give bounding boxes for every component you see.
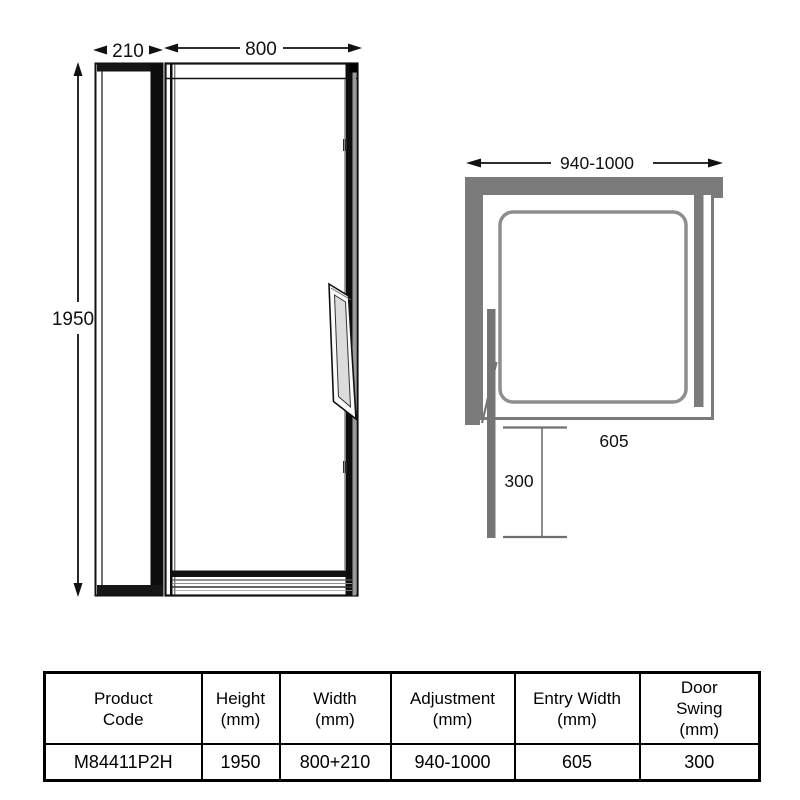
cell-width: 800+210 [280, 744, 391, 781]
column-header-product-code: Product Code [45, 673, 202, 745]
dimension-adjustment-width: 940-1000 [466, 153, 723, 173]
dimension-diagram: 210 800 1950 [0, 0, 800, 660]
spec-table-container: Product Code Height (mm) Width (mm) Adju… [43, 671, 761, 782]
shower-tray [500, 212, 686, 402]
header-line: Door [641, 677, 759, 698]
table-row: M84411P2H 1950 800+210 940-1000 605 300 [45, 744, 760, 781]
wall-left [465, 177, 480, 425]
header-line: Swing [641, 698, 759, 719]
header-line: Height [203, 688, 279, 709]
column-header-height: Height (mm) [202, 673, 280, 745]
dimension-height: 1950 [52, 62, 94, 597]
arrow-down-icon [74, 583, 83, 597]
door-elevation [165, 64, 358, 596]
door-width-label: 800 [245, 39, 277, 60]
column-header-door-swing: Door Swing (mm) [640, 673, 760, 745]
cell-adjustment: 940-1000 [391, 744, 515, 781]
header-line: (mm) [281, 709, 390, 730]
dimension-side-width: 210 [93, 41, 163, 62]
header-line: (mm) [516, 709, 639, 730]
stile-top-nub [349, 64, 358, 73]
cell-entry-width: 605 [515, 744, 640, 781]
arrow-right-icon [348, 44, 362, 53]
door-swing-label: 300 [504, 471, 533, 491]
height-label: 1950 [52, 309, 94, 330]
header-line: Product [46, 688, 201, 709]
arrow-right-icon [708, 159, 723, 168]
cell-door-swing: 300 [640, 744, 760, 781]
header-line: Entry Width [516, 688, 639, 709]
pivot-door-open [487, 309, 496, 538]
panel-right-post [151, 64, 164, 596]
arrow-up-icon [74, 62, 83, 76]
door-bottom-rail [172, 571, 352, 591]
arrow-left-icon [466, 159, 481, 168]
header-line: (mm) [203, 709, 279, 730]
header-line: Width [281, 688, 390, 709]
header-line: (mm) [641, 719, 759, 740]
wall-top-nub [714, 192, 723, 198]
header-line: (mm) [392, 709, 514, 730]
spec-table: Product Code Height (mm) Width (mm) Adju… [43, 671, 761, 782]
dimension-door-width: 800 [164, 39, 362, 60]
cell-product-code: M84411P2H [45, 744, 202, 781]
arrow-right-icon [149, 46, 163, 55]
column-header-adjustment: Adjustment (mm) [391, 673, 515, 745]
cell-height: 1950 [202, 744, 280, 781]
wall-top [467, 177, 723, 192]
front-elevation-view: 210 800 1950 [52, 39, 362, 597]
column-header-entry-width: Entry Width (mm) [515, 673, 640, 745]
header-line: Adjustment [392, 688, 514, 709]
column-header-width: Width (mm) [280, 673, 391, 745]
side-panel-plan [694, 195, 704, 407]
side-width-label: 210 [112, 41, 144, 62]
arrow-left-icon [164, 44, 178, 53]
arrow-left-icon [93, 46, 107, 55]
plan-view: 940-1000 605 300 [465, 153, 723, 538]
panel-bottom-cap [97, 585, 163, 595]
adjustment-width-label: 940-1000 [560, 153, 634, 173]
header-line: Code [46, 709, 201, 730]
entry-width-label: 605 [599, 431, 628, 451]
side-panel-elevation [96, 64, 164, 596]
dimension-door-swing: 300 [503, 427, 567, 537]
